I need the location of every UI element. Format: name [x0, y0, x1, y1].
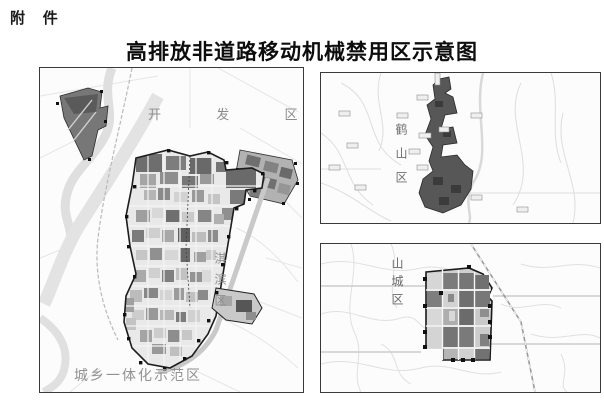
main-map-graphic	[40, 68, 303, 392]
heshan-map-panel: 鹤山区	[320, 72, 601, 224]
attachment-label: 附 件	[10, 7, 65, 28]
shancheng-map-panel: 山城区	[320, 243, 601, 393]
shancheng-zone-grid	[426, 268, 492, 360]
heshan-map-graphic	[321, 73, 600, 223]
river-line	[468, 73, 483, 223]
page-title: 高排放非道路移动机械禁用区示意图	[0, 36, 604, 66]
main-zone-mosaic	[120, 146, 270, 378]
main-map-panel: 开 发 区 淇滨区 城乡一体化示范区	[39, 67, 304, 393]
document-page: 附 件 高排放非道路移动机械禁用区示意图	[0, 0, 604, 400]
shancheng-map-graphic	[321, 244, 600, 392]
